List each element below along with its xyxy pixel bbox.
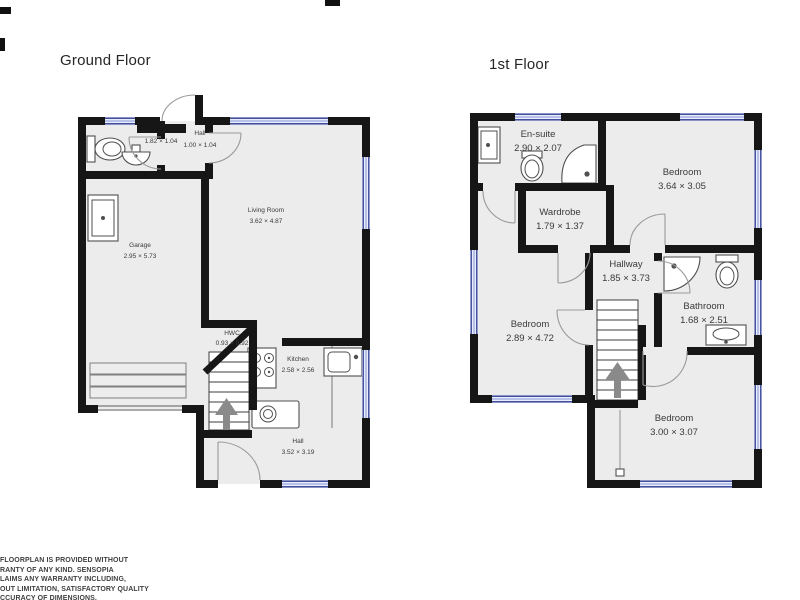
door-stop bbox=[616, 469, 624, 476]
window bbox=[754, 280, 762, 335]
room-label: Bathroom bbox=[683, 301, 724, 312]
room-label: Bedroom bbox=[511, 319, 550, 330]
window bbox=[680, 113, 744, 121]
stairs-up-arrow bbox=[614, 378, 621, 398]
first-floor-title: 1st Floor bbox=[489, 56, 549, 73]
room-label: Hallway bbox=[609, 259, 643, 270]
window bbox=[470, 250, 478, 334]
room-dims: 1.68 × 2.51 bbox=[680, 315, 728, 326]
room-dims: 2.90 × 2.07 bbox=[514, 143, 562, 154]
window bbox=[492, 395, 572, 403]
disclaimer-line: CCURACY OF DIMENSIONS. bbox=[0, 594, 220, 600]
room-dims: 3.52 × 3.19 bbox=[282, 449, 315, 456]
room-label: Wardrobe bbox=[539, 207, 580, 218]
room-dims: 3.00 × 3.07 bbox=[650, 427, 698, 438]
toilet-fixture bbox=[87, 136, 125, 162]
wall-overlap-bar bbox=[137, 124, 186, 133]
room-label: Bedroom bbox=[655, 413, 694, 424]
bathroom-toilet-fixture bbox=[716, 255, 738, 288]
room-dims: 2.58 × 2.56 bbox=[282, 367, 315, 374]
disclaimer-line: RANTY OF ANY KIND. SENSOPIA bbox=[0, 566, 220, 576]
window bbox=[230, 117, 328, 125]
room-label: Kitchen bbox=[287, 356, 309, 363]
room-dims: 2.89 × 4.72 bbox=[506, 333, 554, 344]
bathroom-sink-fixture bbox=[706, 325, 746, 345]
window bbox=[362, 350, 370, 418]
ground-floor-plan: Toilet 1.82 × 1.04 Hall 1.00 × 1.04 Gara… bbox=[60, 95, 380, 499]
room-dims: 3.64 × 3.05 bbox=[658, 181, 706, 192]
disclaimer-line: LAIMS ANY WARRANTY INCLUDING, bbox=[0, 575, 220, 585]
crop-mark bbox=[325, 0, 340, 6]
room-dims: 3.62 × 4.87 bbox=[250, 218, 283, 225]
room-dims: 1.79 × 1.37 bbox=[536, 221, 584, 232]
window bbox=[515, 113, 561, 121]
window bbox=[640, 480, 732, 488]
crop-mark bbox=[0, 7, 11, 14]
washing-machine-fixture bbox=[252, 401, 299, 428]
stairs-up-arrow bbox=[223, 413, 230, 430]
disclaimer-line: OUT LIMITATION, SATISFACTORY QUALITY bbox=[0, 585, 220, 595]
crop-mark bbox=[0, 38, 5, 51]
room-dims: 2.95 × 5.73 bbox=[124, 253, 157, 260]
window bbox=[362, 157, 370, 229]
window bbox=[754, 150, 762, 228]
room-label: Living Room bbox=[248, 207, 284, 214]
first-floor-stairs bbox=[597, 300, 638, 400]
ensuite-toilet-fixture bbox=[521, 151, 543, 181]
disclaimer-line: FLOORPLAN IS PROVIDED WITHOUT bbox=[0, 556, 220, 566]
window bbox=[754, 385, 762, 449]
room-label: En-suite bbox=[521, 129, 556, 140]
room-label: Hall bbox=[194, 130, 206, 137]
room-dims: 1.85 × 3.73 bbox=[602, 273, 650, 284]
window bbox=[105, 117, 135, 125]
room-label: HWC bbox=[224, 330, 240, 337]
garage-sink-fixture bbox=[88, 195, 118, 241]
entrance-door-arc bbox=[162, 95, 195, 121]
room-dims: 1.82 × 1.04 bbox=[145, 138, 178, 145]
room-label: Bedroom bbox=[663, 167, 702, 178]
room-label: Hall bbox=[292, 438, 304, 445]
ensuite-sink-fixture bbox=[478, 127, 500, 163]
room-dims: 0.93 × 0.92 bbox=[216, 340, 249, 347]
window bbox=[282, 480, 328, 488]
disclaimer-text: FLOORPLAN IS PROVIDED WITHOUT RANTY OF A… bbox=[0, 556, 220, 600]
first-floor-plan: En-suite 2.90 × 2.07 Wardrobe 1.79 × 1.3… bbox=[450, 95, 770, 499]
floorplan-canvas: Ground Floor 1st Floor bbox=[0, 0, 800, 600]
room-label: Garage bbox=[129, 242, 151, 249]
ground-floor-title: Ground Floor bbox=[60, 52, 151, 69]
room-dims: 1.00 × 1.04 bbox=[184, 142, 217, 149]
